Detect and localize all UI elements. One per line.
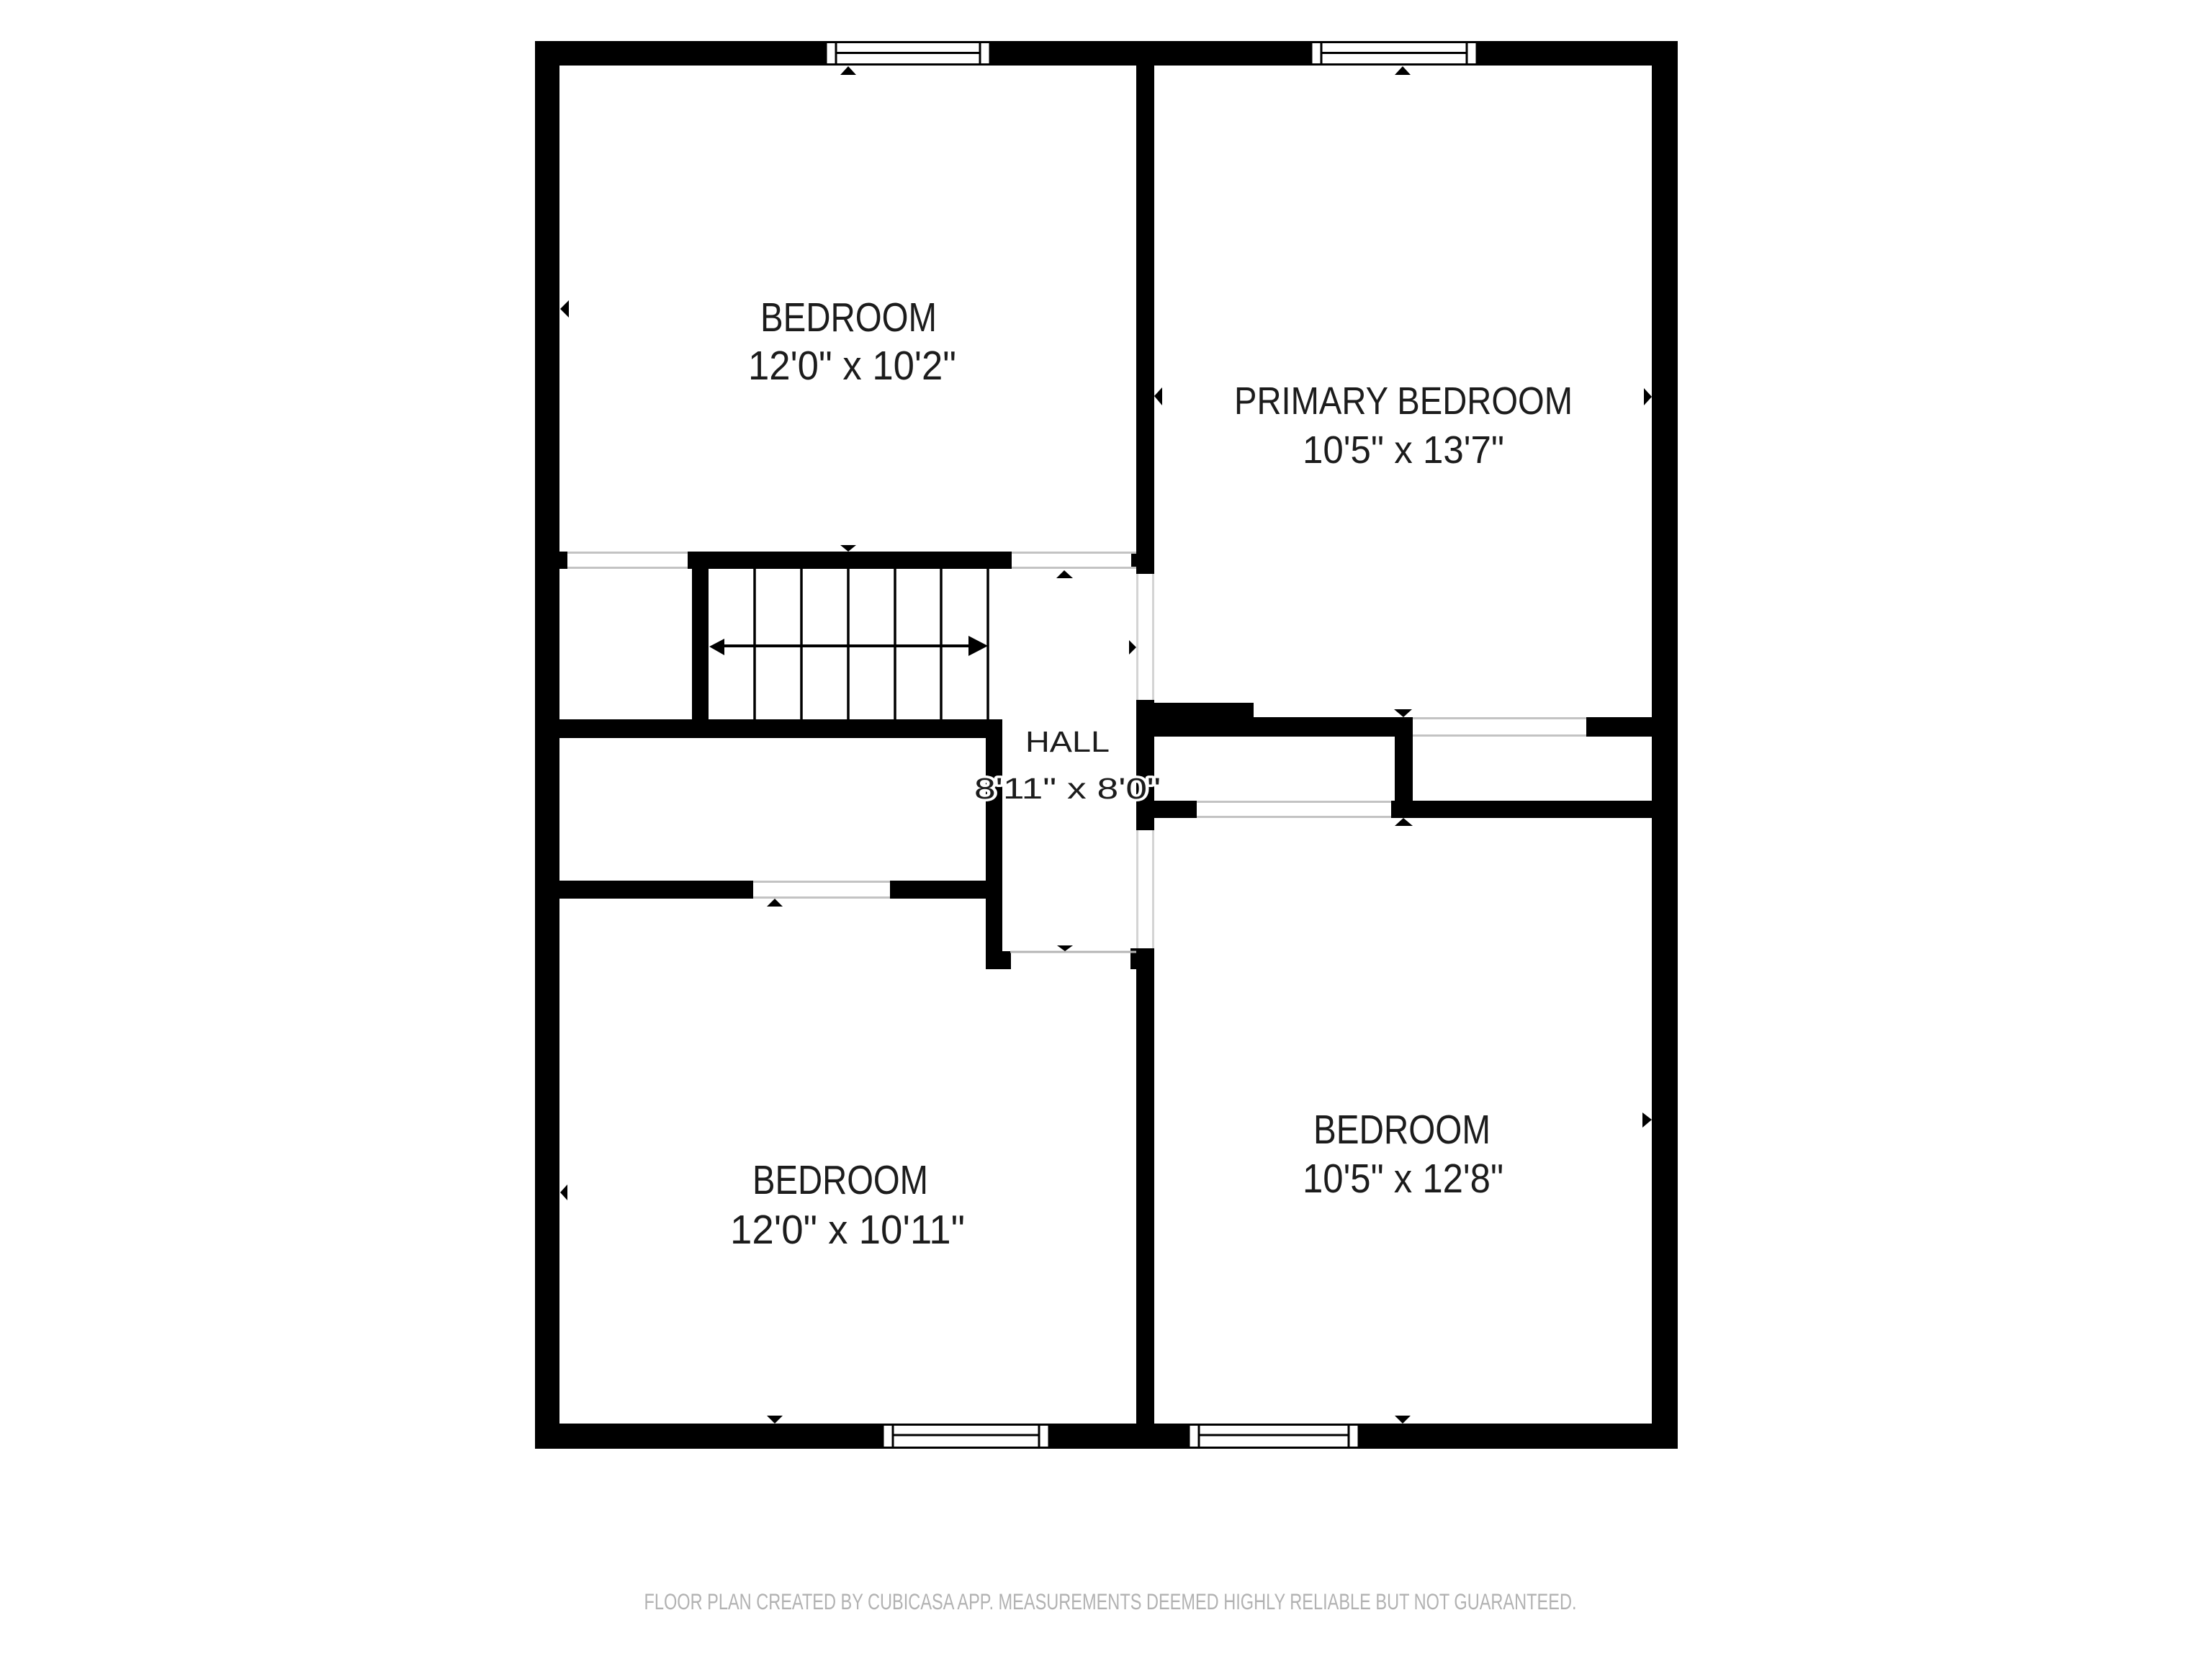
svg-text:BEDROOM: BEDROOM [760,295,937,341]
svg-text:12'0" x 10'2": 12'0" x 10'2" [748,343,956,389]
svg-text:BEDROOM: BEDROOM [1313,1107,1491,1153]
svg-text:10'5" x 13'7": 10'5" x 13'7" [1303,428,1504,472]
svg-text:10'5" x 12'8": 10'5" x 12'8" [1303,1156,1503,1202]
svg-text:8'11" x 8'0": 8'11" x 8'0" [974,772,1161,805]
svg-text:FLOOR PLAN CREATED BY CUBICASA: FLOOR PLAN CREATED BY CUBICASA APP. MEAS… [644,1588,1577,1614]
svg-text:12'0" x 10'11": 12'0" x 10'11" [730,1207,965,1253]
svg-text:PRIMARY BEDROOM: PRIMARY BEDROOM [1234,379,1573,423]
svg-text:BEDROOM: BEDROOM [752,1157,928,1203]
svg-text:HALL: HALL [1025,725,1110,758]
